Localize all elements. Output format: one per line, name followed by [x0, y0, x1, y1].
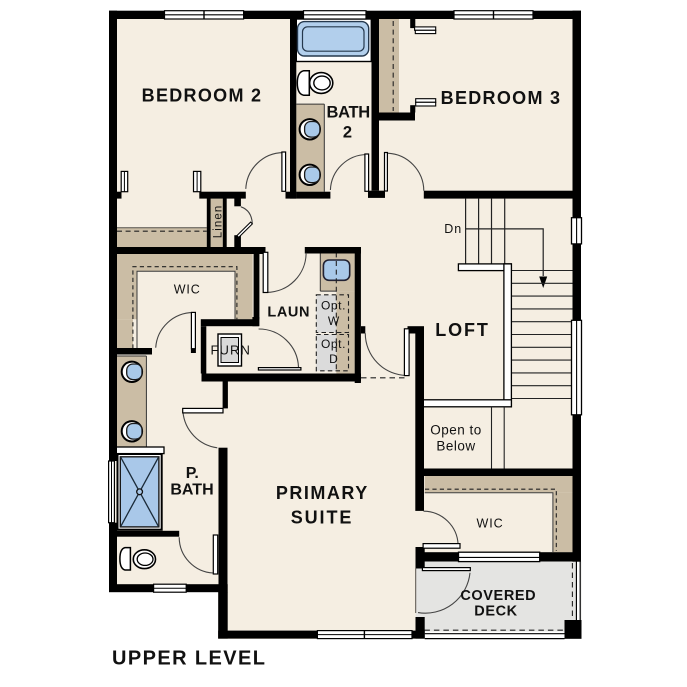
svg-text:BEDROOM 2: BEDROOM 2: [142, 86, 263, 106]
svg-text:D: D: [329, 352, 338, 366]
svg-text:P.: P.: [186, 465, 199, 482]
svg-text:Linen: Linen: [213, 205, 225, 239]
svg-text:DECK: DECK: [474, 604, 518, 620]
svg-text:SUITE: SUITE: [291, 508, 354, 528]
svg-text:LOFT: LOFT: [435, 320, 490, 340]
svg-text:Opt.: Opt.: [321, 299, 346, 313]
svg-text:FURN: FURN: [210, 343, 251, 358]
svg-text:WIC: WIC: [477, 516, 504, 530]
svg-text:Below: Below: [436, 438, 475, 453]
svg-text:UPPER LEVEL: UPPER LEVEL: [112, 647, 266, 669]
svg-text:WIC: WIC: [174, 283, 201, 297]
svg-text:2: 2: [343, 123, 352, 141]
svg-text:PRIMARY: PRIMARY: [276, 483, 369, 503]
svg-text:LAUN: LAUN: [267, 304, 310, 320]
svg-text:W: W: [328, 314, 340, 328]
svg-text:BATH: BATH: [170, 482, 213, 499]
svg-text:Dn: Dn: [444, 222, 462, 236]
svg-text:BATH: BATH: [326, 104, 369, 122]
svg-text:Opt.: Opt.: [321, 337, 346, 351]
svg-text:COVERED: COVERED: [460, 588, 536, 604]
svg-text:BEDROOM 3: BEDROOM 3: [441, 88, 562, 108]
svg-text:Open to: Open to: [430, 422, 482, 437]
